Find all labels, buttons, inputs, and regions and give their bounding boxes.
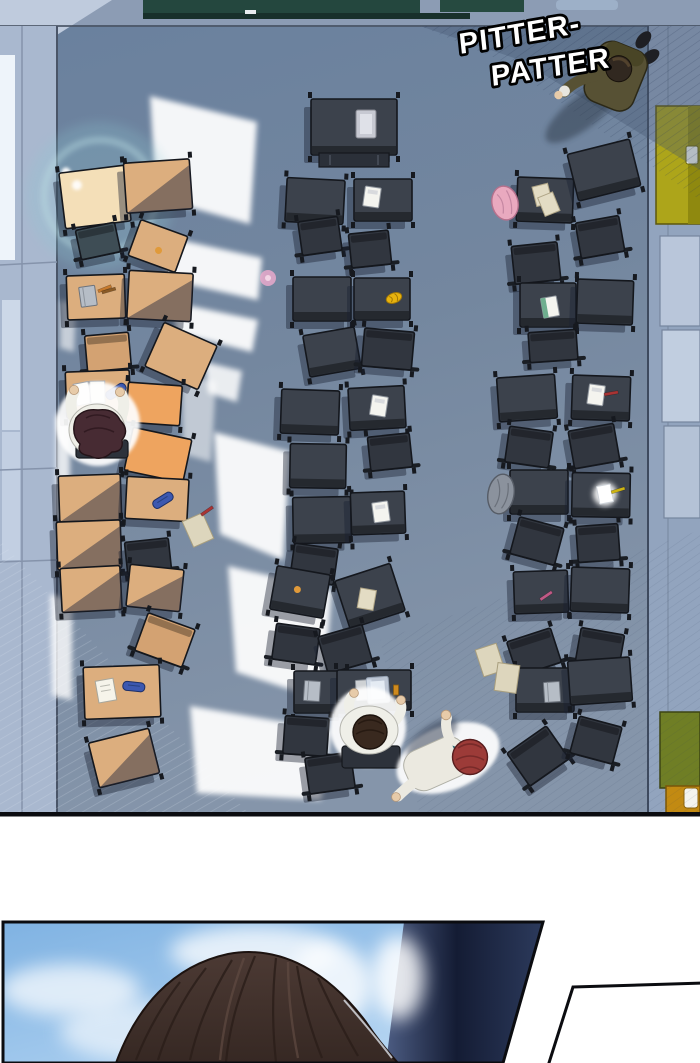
left-window-2 bbox=[2, 432, 20, 560]
desk bbox=[564, 368, 634, 429]
desk-item-graynote bbox=[303, 680, 320, 701]
desk-item-note bbox=[372, 501, 391, 523]
chalkboard bbox=[143, 0, 420, 15]
desk bbox=[347, 172, 415, 229]
desk-item-noteG bbox=[540, 296, 559, 318]
desk bbox=[513, 276, 579, 335]
right-window-3 bbox=[664, 426, 700, 518]
window-glare-left bbox=[0, 55, 15, 260]
desk-item-tag bbox=[394, 685, 399, 695]
desk bbox=[347, 271, 413, 328]
arm bbox=[71, 392, 74, 418]
reading-student bbox=[56, 382, 140, 466]
desk-item-graynote bbox=[543, 681, 560, 702]
chalk-piece bbox=[245, 10, 256, 14]
desk bbox=[273, 382, 343, 443]
left-window-1 bbox=[2, 300, 20, 430]
panel-classroom: PITTER- PATTER bbox=[0, 0, 700, 815]
speech-bubble bbox=[548, 983, 700, 1063]
chalkboard-segment bbox=[440, 0, 524, 12]
hand bbox=[397, 696, 406, 705]
arm bbox=[446, 718, 450, 740]
desk bbox=[282, 436, 349, 496]
hand bbox=[350, 689, 359, 698]
hair-reading-student bbox=[74, 410, 126, 459]
chalk-tray bbox=[143, 13, 470, 19]
desk-item-case bbox=[122, 681, 145, 692]
sitting-student bbox=[330, 687, 406, 768]
desk bbox=[76, 658, 164, 728]
desk bbox=[569, 272, 637, 333]
backlight-glow bbox=[372, 936, 424, 1020]
hand bbox=[392, 793, 401, 802]
desk-item-graypanel bbox=[356, 110, 376, 138]
hand bbox=[115, 387, 124, 396]
desk bbox=[304, 92, 400, 167]
comic-artwork: PITTER- PATTER bbox=[0, 0, 700, 1063]
desk-item-podium bbox=[319, 153, 389, 167]
desk bbox=[53, 558, 126, 621]
right-window-1 bbox=[660, 236, 700, 326]
desk bbox=[286, 270, 354, 329]
desk bbox=[119, 263, 196, 330]
desk-item-note bbox=[369, 395, 388, 417]
floor-item-paperF bbox=[494, 663, 520, 694]
desk-item-note bbox=[587, 384, 606, 406]
webtoon-page: PITTER- PATTER bbox=[0, 0, 700, 1063]
panel-closeup bbox=[0, 920, 560, 1063]
desk-item-paper bbox=[357, 588, 376, 610]
desk bbox=[564, 465, 633, 525]
desk-item-paper2 bbox=[95, 678, 117, 703]
desk-item-graynote bbox=[79, 285, 98, 307]
hand bbox=[441, 710, 451, 720]
desk bbox=[563, 560, 633, 621]
hand bbox=[69, 385, 78, 394]
right-window-2 bbox=[662, 330, 700, 422]
wall-panel bbox=[556, 0, 618, 10]
panel1-border bbox=[0, 812, 700, 817]
desk-item-note bbox=[363, 186, 382, 208]
desk bbox=[59, 267, 129, 328]
desk bbox=[285, 489, 354, 551]
